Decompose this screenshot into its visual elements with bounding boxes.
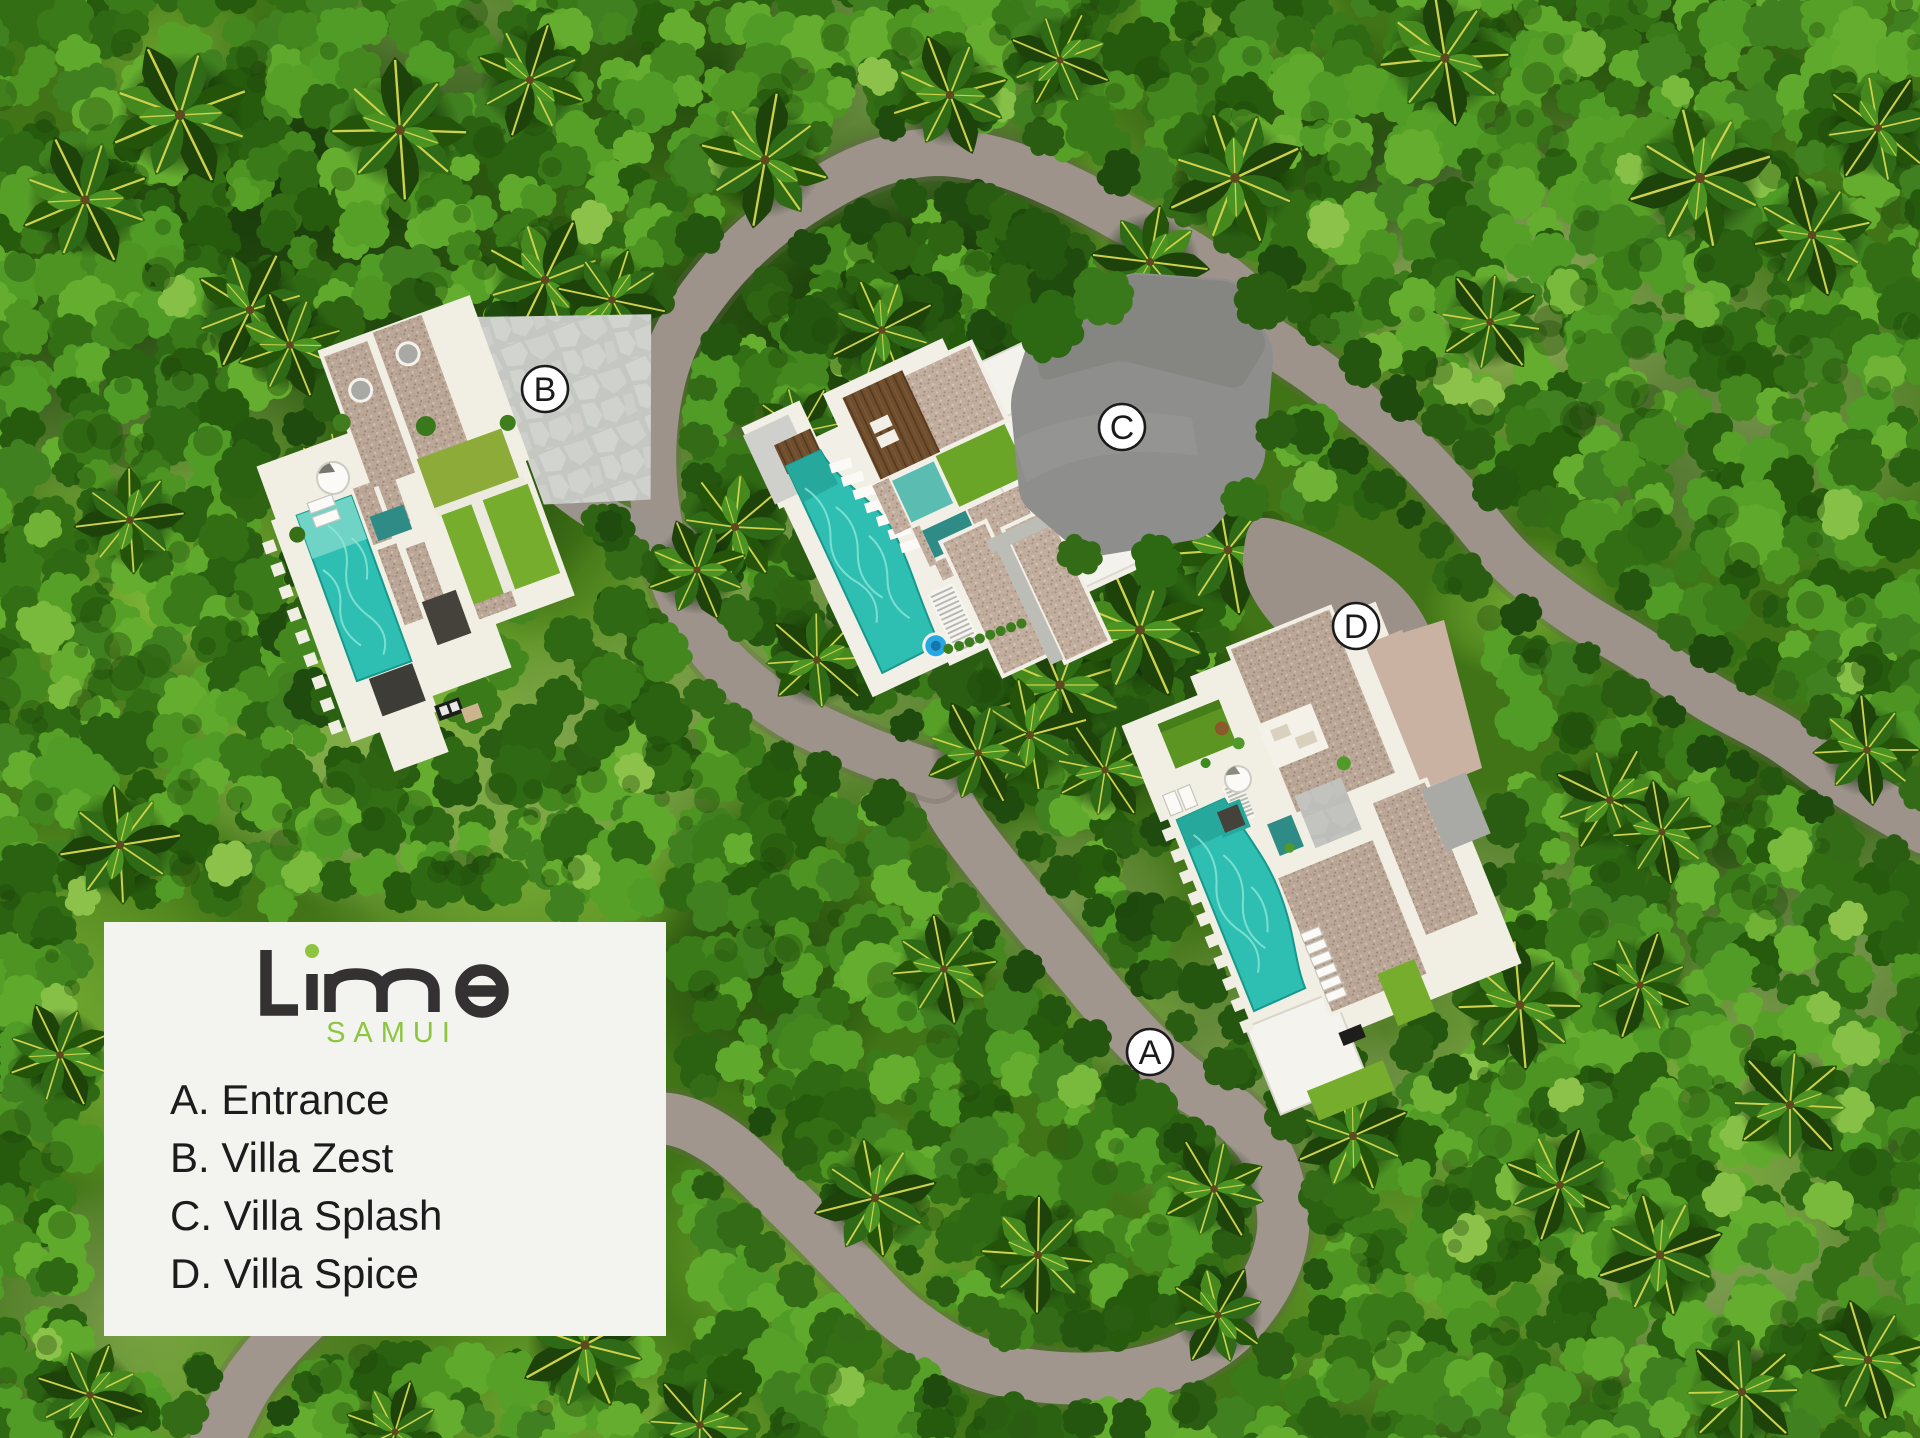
svg-text:A: A xyxy=(1139,1034,1162,1072)
svg-text:D: D xyxy=(1344,608,1369,646)
svg-text:B: B xyxy=(534,371,557,409)
svg-text:C: C xyxy=(1110,409,1135,447)
svg-text:D. Villa Spice: D. Villa Spice xyxy=(170,1250,419,1297)
svg-text:B. Villa Zest: B. Villa Zest xyxy=(170,1134,394,1181)
svg-text:A. Entrance: A. Entrance xyxy=(170,1076,389,1123)
svg-text:C. Villa Splash: C. Villa Splash xyxy=(170,1192,442,1239)
svg-text:SAMUI: SAMUI xyxy=(326,1017,458,1049)
